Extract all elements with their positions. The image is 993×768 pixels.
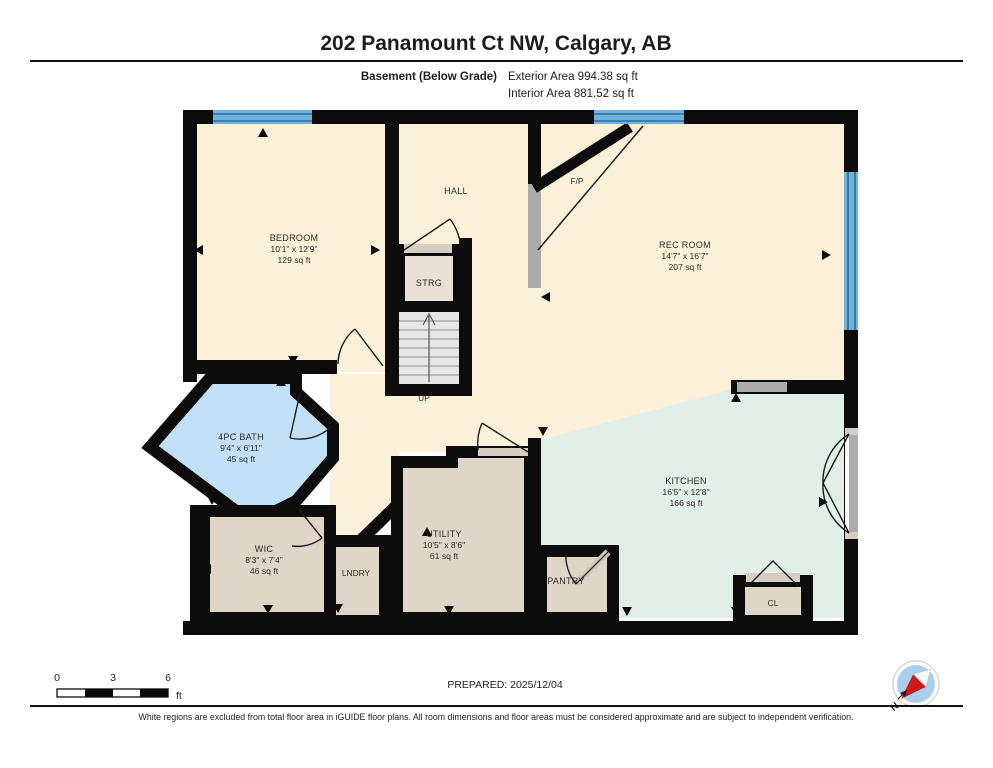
bedroom-label: BEDROOM xyxy=(270,233,319,243)
scale-start: 0 xyxy=(54,672,60,684)
wic-dims: 8'3" x 7'4" xyxy=(245,555,283,565)
scale-end: 6 xyxy=(165,672,171,684)
kitchen-sqft: 166 sq ft xyxy=(670,498,704,508)
bath-label: 4PC BATH xyxy=(218,432,264,442)
utility-label: UTILITY xyxy=(426,529,462,539)
page-title: 202 Panamount Ct NW, Calgary, AB xyxy=(320,32,671,55)
rec-room-sqft: 207 sq ft xyxy=(669,262,703,272)
rec-room-label: REC ROOM xyxy=(659,240,711,250)
kitchen-opening xyxy=(737,382,787,392)
scale-bar: 0 3 6 ft xyxy=(54,672,182,702)
exterior-area: Exterior Area 994.38 sq ft xyxy=(508,71,639,83)
disclaimer: White regions are excluded from total fl… xyxy=(139,712,854,722)
wall-left xyxy=(183,110,197,382)
compass-north-label: N xyxy=(889,701,902,714)
utility-area xyxy=(397,452,530,618)
wall-bedroom-bottom xyxy=(183,360,337,374)
kitchen-dims: 16'5" x 12'8" xyxy=(662,487,709,497)
window xyxy=(844,172,858,330)
floor-plan-canvas: 202 Panamount Ct NW, Calgary, AB Basemen… xyxy=(0,0,993,768)
cl-label: CL xyxy=(768,598,779,608)
wic-label: WIC xyxy=(255,544,274,554)
interior-area: Interior Area 881.52 sq ft xyxy=(508,88,635,100)
floor-plan: BEDROOM 10'1" x 12'9" 129 sq ft HALL F/P… xyxy=(148,110,858,635)
bedroom-dims: 10'1" x 12'9" xyxy=(270,244,317,254)
prepared-date: PREPARED: 2025/12/04 xyxy=(447,679,563,691)
window xyxy=(213,110,312,124)
bath-dims: 9'4" x 6'11" xyxy=(220,443,262,453)
rec-room-dims: 14'7" x 16'7" xyxy=(661,251,708,261)
scale-unit: ft xyxy=(176,690,182,702)
hall-label: HALL xyxy=(444,186,468,196)
floor-plan-page: { "header": { "title": "202 Panamount Ct… xyxy=(0,0,993,768)
kitchen-label: KITCHEN xyxy=(665,476,707,486)
wall-fireplace xyxy=(528,124,541,184)
fireplace-label: F/P xyxy=(570,176,583,186)
bath-sqft: 45 sq ft xyxy=(227,454,256,464)
stairs-up-label: UP xyxy=(418,393,430,403)
lndry-label: LNDRY xyxy=(342,568,371,578)
pantry-label: PANTRY xyxy=(547,576,584,586)
fireplace-half-wall xyxy=(528,184,541,288)
bedroom-sqft: 129 sq ft xyxy=(278,255,312,265)
wic-sqft: 46 sq ft xyxy=(250,566,279,576)
floor-label: Basement (Below Grade) xyxy=(361,71,497,83)
strg-label: STRG xyxy=(416,278,442,288)
window xyxy=(594,110,684,124)
utility-dims: 10'5" x 8'6" xyxy=(423,540,465,550)
staircase xyxy=(399,312,459,384)
utility-sqft: 61 sq ft xyxy=(430,551,459,561)
scale-mid: 3 xyxy=(110,672,116,684)
